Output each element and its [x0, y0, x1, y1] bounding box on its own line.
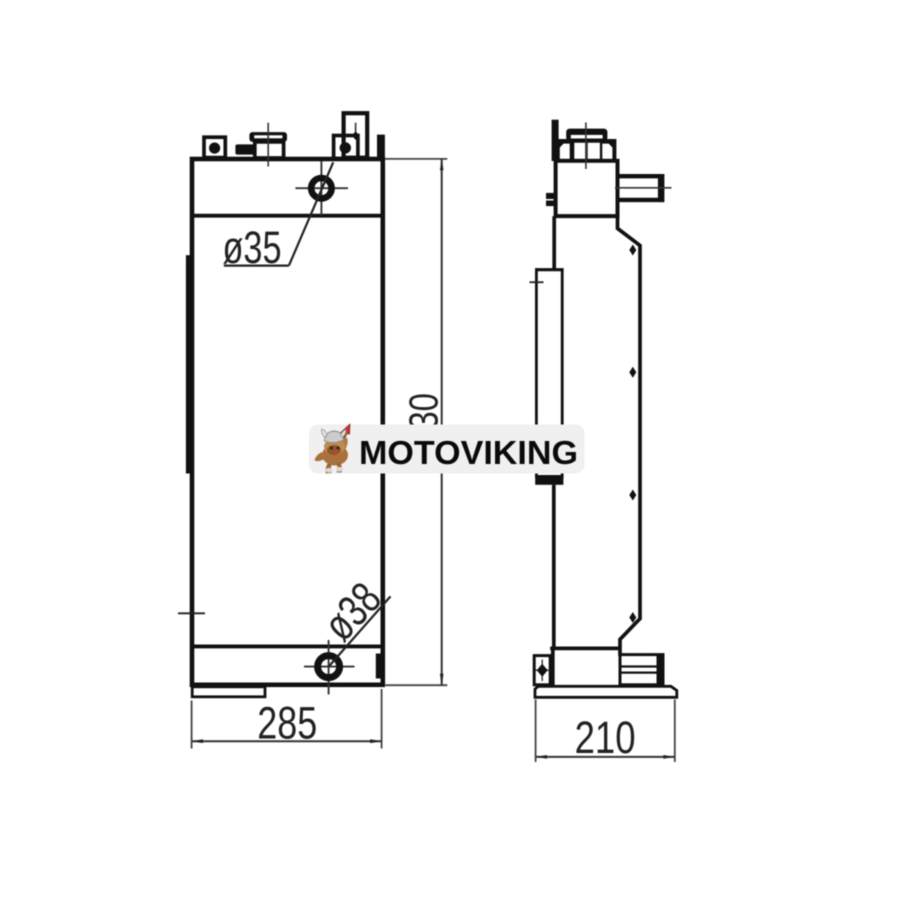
svg-text:MOTOVIKING: MOTOVIKING: [359, 434, 578, 471]
svg-text:285: 285: [257, 697, 317, 748]
svg-text:210: 210: [575, 712, 636, 763]
svg-text:ø35: ø35: [223, 222, 282, 273]
